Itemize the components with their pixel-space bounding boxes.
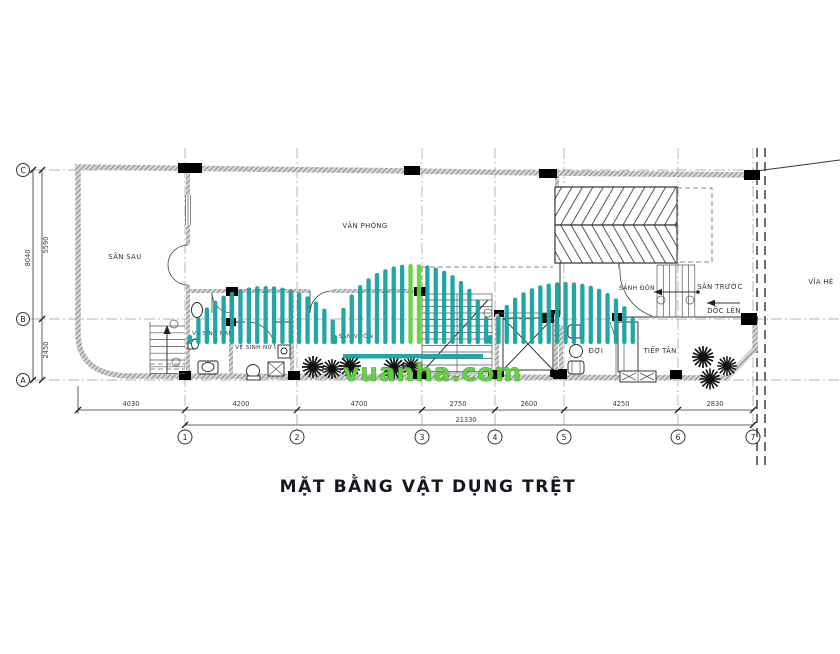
room-label-ve-sinh-nu: VỆ SINH NỮ <box>235 343 273 351</box>
watermark-text: vuanha.com <box>343 358 522 387</box>
dim-4700: 4700 <box>351 400 368 408</box>
grid-bubble-5: 5 <box>562 433 567 442</box>
grid-bubble-7: 7 <box>751 433 756 442</box>
dim-4200: 4200 <box>233 400 250 408</box>
ramp <box>555 187 712 263</box>
grid-bubble-A: A <box>20 376 26 385</box>
room-label-san-truoc: SÂN TRƯỚC <box>697 282 743 291</box>
dim-2750: 2750 <box>450 400 467 408</box>
dim-total-21330: 21330 <box>456 416 477 424</box>
room-label-van-phong: VĂN PHÒNG <box>342 221 387 230</box>
room-label-doc-len: DỐC LÊN <box>707 305 740 315</box>
back-staircase <box>150 320 185 376</box>
room-label-san-sau: SÂN SAU <box>108 252 141 261</box>
overhead-dashed-line <box>422 267 553 291</box>
grid-bubble-C: C <box>20 166 25 175</box>
dim-2450: 2450 <box>42 342 50 359</box>
dim-4030: 4030 <box>123 400 140 408</box>
dim-2830: 2830 <box>707 400 724 408</box>
grid-bubble-3: 3 <box>420 433 425 442</box>
dim-2600: 2600 <box>521 400 538 408</box>
dim-5590: 5590 <box>42 237 50 254</box>
room-label-sanh-don: SẢNH ĐÓN <box>619 284 655 292</box>
dim-8040: 8040 <box>24 250 32 267</box>
floor-plan-drawing: SÂN SAU VĂN PHÒNG VỆ SINH NAM VỆ SINH NỮ… <box>0 0 840 654</box>
dim-4250: 4250 <box>613 400 630 408</box>
grid-bubble-4: 4 <box>493 433 498 442</box>
grid-bubble-1: 1 <box>183 433 188 442</box>
room-label-via-he: VỈA HÈ <box>808 277 833 286</box>
room-label-tiep-tan: TIẾP TÂN <box>642 345 676 355</box>
grid-bubble-B: B <box>20 315 25 324</box>
drawing-title: MẶT BẰNG VẬT DỤNG TRỆT <box>280 473 577 497</box>
grid-bubble-2: 2 <box>295 433 300 442</box>
property-boundary-lines <box>756 148 840 468</box>
doc-len-arrow <box>707 300 740 306</box>
entry-steps <box>654 265 700 317</box>
left-dimensions: 5590 2450 8040 <box>24 170 50 380</box>
grid-bubble-6: 6 <box>676 433 681 442</box>
room-label-doi: ĐỢI <box>589 347 604 355</box>
